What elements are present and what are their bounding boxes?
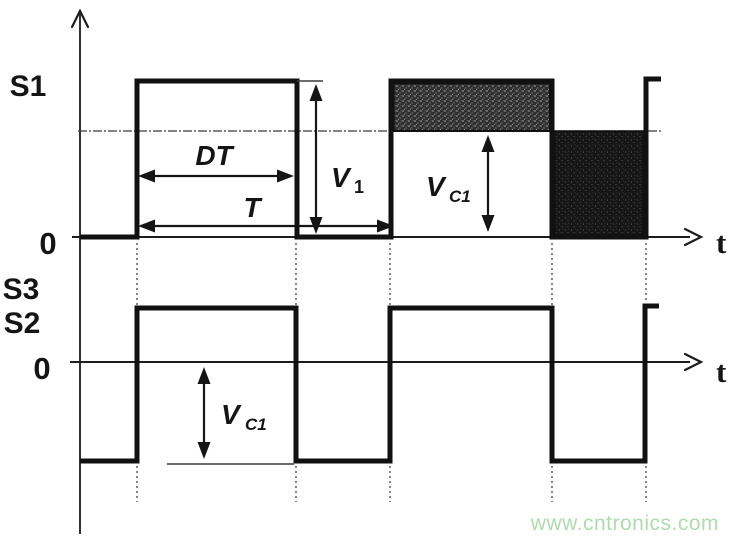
dt-label: DT <box>195 140 235 171</box>
vc1-arrow-bottom <box>198 367 211 459</box>
waveform-diagram: S1 0 t DT T V 1 V C1 S3 S2 0 t V C1 www.… <box>0 0 741 539</box>
v1-arrow <box>310 84 323 234</box>
bottom-time-label: t <box>716 354 727 389</box>
vc1-top-label-base: V <box>426 171 447 202</box>
s3-label: S3 <box>3 273 40 306</box>
v1-label-base: V <box>331 162 352 193</box>
top-origin-label: 0 <box>39 226 56 261</box>
vc1-top-label-sub: C1 <box>449 187 471 206</box>
bottom-origin-label: 0 <box>33 351 50 386</box>
watermark-text: www.cntronics.com <box>530 512 719 535</box>
vc1-bottom-label-base: V <box>221 399 242 430</box>
v1-label-sub: 1 <box>354 177 364 197</box>
t-period-label: T <box>243 192 263 223</box>
top-plot: S1 0 t DT T V 1 V C1 <box>10 70 727 261</box>
vc1-bottom-label-sub: C1 <box>245 415 267 434</box>
top-time-label: t <box>716 225 727 260</box>
s1-shaded-band-above-vc1 <box>394 84 551 132</box>
t-period-arrow <box>138 220 394 233</box>
s2-s3-waveform <box>80 306 659 461</box>
s1-shaded-block-below-vc1 <box>555 132 644 236</box>
vc1-arrow-top <box>482 135 495 232</box>
bottom-plot: S3 S2 0 t V C1 <box>3 273 727 464</box>
waveform-figure: S1 0 t DT T V 1 V C1 S3 S2 0 t V C1 www.… <box>0 0 741 539</box>
s1-label: S1 <box>10 70 47 103</box>
s2-label: S2 <box>4 307 41 340</box>
dt-arrow <box>138 170 294 183</box>
